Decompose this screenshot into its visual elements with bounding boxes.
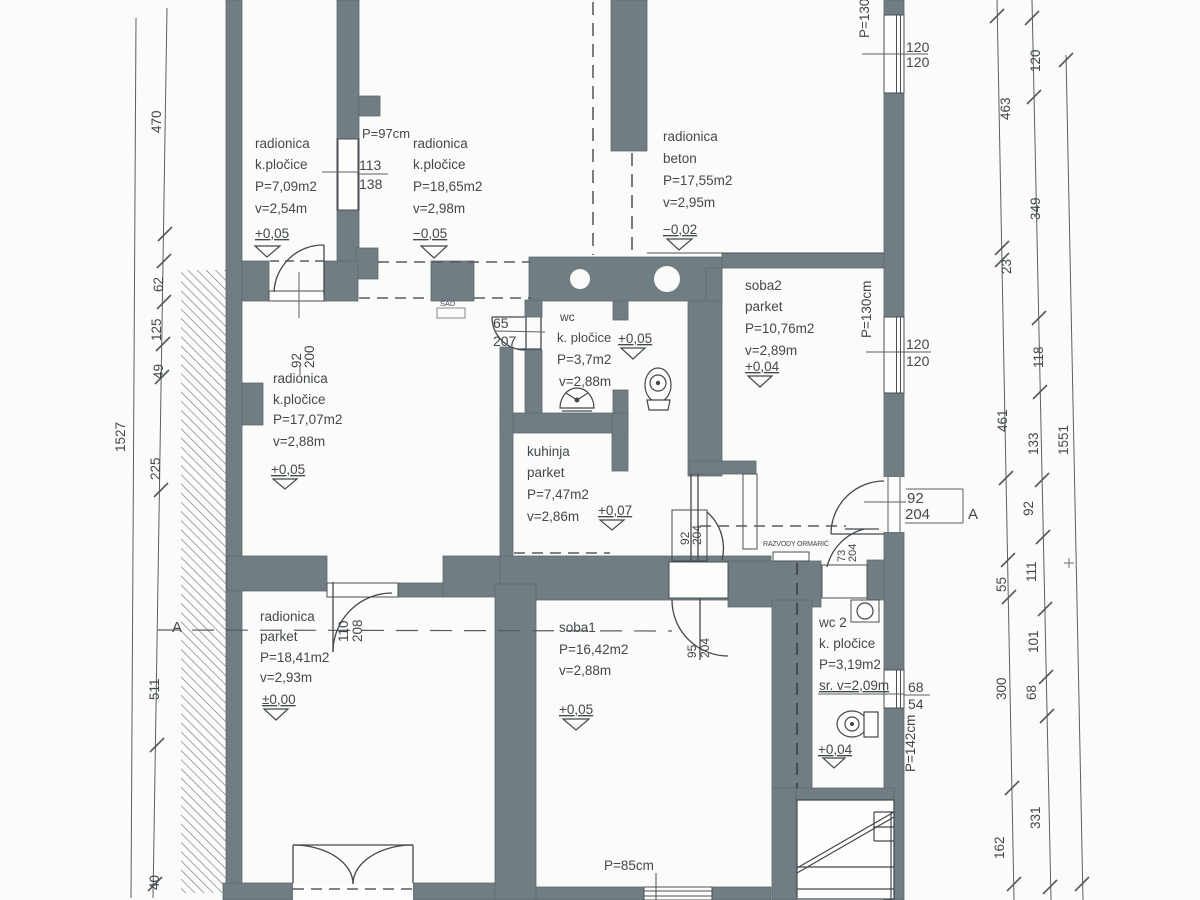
svg-text:138: 138: [359, 176, 383, 192]
svg-text:P=7,09m2: P=7,09m2: [255, 179, 317, 194]
svg-text:120: 120: [906, 39, 930, 55]
svg-text:55: 55: [994, 577, 1009, 592]
svg-text:225: 225: [148, 457, 163, 480]
svg-text:101: 101: [1026, 630, 1041, 653]
svg-text:radionica: radionica: [255, 136, 310, 151]
svg-text:P=130: P=130: [857, 0, 872, 38]
svg-text:P=10,76m2: P=10,76m2: [745, 321, 814, 336]
svg-text:+0,05: +0,05: [271, 462, 305, 477]
svg-text:v=2,88m: v=2,88m: [559, 374, 611, 389]
svg-text:soba1: soba1: [559, 620, 596, 635]
svg-text:k. pločice: k. pločice: [557, 330, 611, 345]
svg-text:wc: wc: [559, 310, 575, 324]
svg-text:P=18,65m2: P=18,65m2: [413, 179, 482, 194]
svg-text:92: 92: [907, 490, 924, 507]
svg-text:+0,04: +0,04: [745, 359, 780, 374]
svg-text:68: 68: [1024, 685, 1039, 700]
svg-text:kuhinja: kuhinja: [527, 444, 570, 459]
svg-text:P=17,07m2: P=17,07m2: [273, 412, 342, 427]
svg-text:207: 207: [493, 333, 517, 349]
svg-text:331: 331: [1028, 806, 1043, 829]
svg-text:P=85cm: P=85cm: [604, 858, 654, 873]
svg-text:radionica: radionica: [273, 371, 328, 386]
svg-text:A: A: [968, 506, 978, 523]
svg-text:511: 511: [147, 678, 162, 700]
svg-text:113: 113: [359, 157, 382, 173]
svg-text:soba2: soba2: [745, 278, 782, 293]
svg-text:92: 92: [1021, 501, 1036, 516]
svg-text:±0,00: ±0,00: [262, 692, 296, 707]
svg-text:v=2,88m: v=2,88m: [559, 663, 611, 678]
svg-text:125: 125: [149, 318, 164, 341]
svg-text:v=2,86m: v=2,86m: [527, 509, 579, 524]
svg-text:v=2,98m: v=2,98m: [413, 201, 465, 216]
svg-text:68: 68: [908, 679, 924, 695]
svg-text:54: 54: [908, 696, 924, 712]
svg-text:463: 463: [998, 97, 1013, 120]
svg-text:v=2,95m: v=2,95m: [663, 195, 715, 210]
svg-text:49: 49: [151, 364, 166, 379]
svg-text:wc 2: wc 2: [818, 615, 847, 630]
svg-text:120: 120: [906, 54, 930, 70]
svg-text:v=2,54m: v=2,54m: [255, 201, 307, 216]
svg-text:k.pločice: k.pločice: [255, 157, 308, 172]
svg-text:65: 65: [493, 315, 509, 331]
svg-text:parket: parket: [527, 465, 565, 480]
svg-text:−0,02: −0,02: [663, 222, 697, 237]
svg-text:radionica: radionica: [663, 129, 718, 144]
svg-text:200: 200: [302, 345, 317, 368]
svg-text:RAZVODY ORMARIĆ: RAZVODY ORMARIĆ: [763, 539, 829, 548]
svg-text:+0,04: +0,04: [818, 742, 853, 757]
svg-text:P=18,41m2: P=18,41m2: [260, 650, 329, 665]
svg-text:461: 461: [995, 409, 1010, 432]
svg-text:162: 162: [992, 836, 1007, 859]
svg-text:k.pločice: k.pločice: [413, 157, 466, 172]
svg-text:P=16,42m2: P=16,42m2: [559, 642, 628, 657]
svg-text:radionica: radionica: [260, 609, 315, 624]
svg-text:204: 204: [905, 506, 930, 523]
svg-text:+0,05: +0,05: [255, 226, 289, 241]
svg-text:P=97cm: P=97cm: [362, 126, 410, 141]
svg-text:118: 118: [1031, 346, 1046, 368]
svg-text:P=3,19m2: P=3,19m2: [819, 657, 881, 672]
svg-text:parket: parket: [745, 299, 783, 314]
svg-text:k.pločice: k.pločice: [273, 392, 326, 407]
svg-text:P=142cm: P=142cm: [903, 715, 918, 772]
svg-text:−0,05: −0,05: [413, 226, 447, 241]
svg-text:1527: 1527: [113, 422, 128, 452]
svg-text:ŠAD: ŠAD: [440, 299, 456, 308]
svg-text:204: 204: [847, 544, 859, 562]
svg-text:120: 120: [906, 353, 930, 369]
svg-text:300: 300: [994, 677, 1009, 700]
svg-text:204: 204: [690, 525, 704, 545]
svg-text:sr. v=2,09m: sr. v=2,09m: [819, 678, 889, 693]
svg-text:40: 40: [147, 875, 162, 890]
svg-text:k. pločice: k. pločice: [819, 636, 875, 651]
svg-text:208: 208: [350, 619, 365, 642]
svg-text:62: 62: [151, 277, 166, 292]
svg-text:radionica: radionica: [413, 136, 468, 151]
svg-text:v=2,89m: v=2,89m: [745, 343, 797, 358]
svg-text:v=2,88m: v=2,88m: [273, 434, 325, 449]
svg-text:beton: beton: [663, 151, 697, 166]
svg-text:v=2,93m: v=2,93m: [260, 670, 312, 685]
svg-text:P=130cm: P=130cm: [859, 281, 874, 338]
svg-text:P=3,7m2: P=3,7m2: [557, 352, 611, 367]
svg-text:P=17,55m2: P=17,55m2: [663, 173, 732, 188]
svg-text:+0,05: +0,05: [618, 331, 652, 346]
svg-text:+0,07: +0,07: [598, 503, 632, 518]
svg-text:1551: 1551: [1056, 425, 1071, 455]
svg-text:95: 95: [685, 644, 699, 658]
svg-text:204: 204: [698, 638, 712, 658]
svg-text:parket: parket: [260, 629, 298, 644]
svg-text:120: 120: [906, 336, 930, 352]
svg-text:111: 111: [1024, 561, 1039, 582]
svg-text:470: 470: [149, 110, 164, 133]
svg-text:120: 120: [1028, 49, 1043, 72]
svg-text:110: 110: [336, 620, 351, 642]
svg-text:133: 133: [1026, 432, 1041, 455]
svg-text:23: 23: [999, 259, 1014, 274]
svg-text:P=7,47m2: P=7,47m2: [527, 487, 589, 502]
svg-text:349: 349: [1028, 197, 1043, 220]
svg-text:A: A: [172, 619, 182, 636]
svg-text:+0,05: +0,05: [559, 702, 593, 717]
